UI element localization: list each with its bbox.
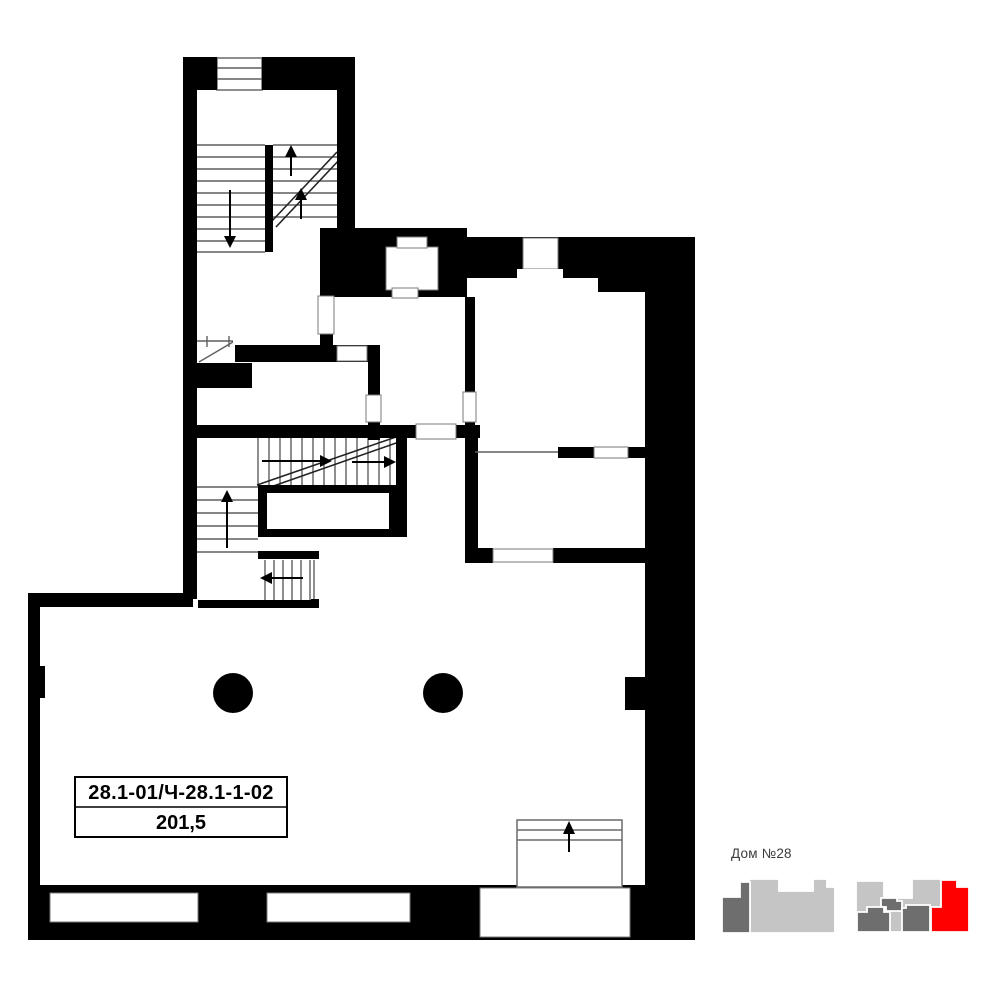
column	[213, 673, 253, 713]
pilaster	[625, 677, 645, 710]
door-opening	[392, 288, 418, 298]
building-section	[902, 905, 930, 932]
wall	[183, 57, 217, 90]
stair-void	[267, 493, 389, 529]
wall	[558, 447, 594, 458]
door-opening	[523, 238, 558, 269]
wall	[553, 548, 645, 563]
wall	[645, 237, 695, 940]
wall	[598, 278, 645, 292]
wall	[465, 548, 493, 563]
door-opening	[493, 549, 553, 562]
wall	[198, 600, 318, 608]
wall-notch	[193, 599, 198, 608]
wall	[262, 57, 355, 90]
unit-label-box: 28.1-01/Ч-28.1-1-02 201,5	[75, 777, 287, 837]
column	[423, 673, 463, 713]
unit-code: 28.1-01/Ч-28.1-1-02	[88, 782, 273, 804]
floor-plan-page: 28.1-01/Ч-28.1-1-02 201,5 Дом №28	[0, 0, 1000, 1000]
minimap-house-label: Дом №28	[731, 846, 792, 861]
wall	[28, 593, 193, 607]
wall	[197, 363, 252, 388]
entrance-opening	[480, 888, 630, 937]
building-b-footprint	[856, 879, 969, 932]
door-opening	[594, 447, 628, 458]
door-opening	[318, 296, 334, 334]
door-opening	[463, 392, 476, 422]
floor-plan-svg: 28.1-01/Ч-28.1-1-02 201,5 Дом №28	[0, 0, 1000, 1000]
wall	[337, 90, 355, 237]
door-opening	[337, 346, 367, 361]
wall	[628, 447, 645, 458]
unit-area: 201,5	[156, 812, 206, 834]
wall	[183, 90, 197, 607]
pilaster	[28, 666, 45, 698]
wall	[465, 425, 478, 548]
page-background	[0, 0, 1000, 1000]
window-opening	[267, 893, 410, 922]
wall	[311, 551, 319, 559]
elevator-shaft	[386, 247, 438, 290]
door-opening	[366, 395, 381, 422]
wall	[265, 145, 273, 252]
door-opening	[397, 237, 427, 248]
window-opening	[50, 893, 198, 922]
wall	[258, 551, 318, 559]
entrance-vestibule	[517, 820, 622, 887]
door-threshold	[517, 269, 563, 278]
door-opening	[416, 424, 456, 439]
